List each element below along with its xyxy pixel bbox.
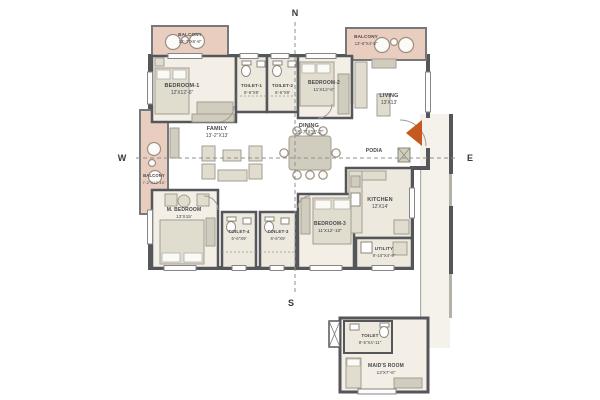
window <box>168 54 202 59</box>
cistern <box>227 217 236 221</box>
pillow <box>184 253 202 262</box>
label-utility: UTILITY <box>375 246 393 251</box>
pillow <box>173 70 186 79</box>
dims-family: 13'-2"X13' <box>206 133 229 139</box>
cistern <box>273 61 282 65</box>
wc-icon <box>242 66 251 77</box>
armchair-icon <box>249 164 262 179</box>
corridor-wall <box>449 206 453 274</box>
window <box>358 389 396 394</box>
window <box>372 266 394 271</box>
cistern <box>242 61 251 65</box>
label-bedroom2: BEDROOM-2 <box>308 80 340 86</box>
balcony-chair <box>399 38 414 53</box>
dims-living: 13'X13' <box>381 100 397 106</box>
basin-icon <box>350 324 359 330</box>
window <box>148 210 153 244</box>
round-table-icon <box>178 195 190 207</box>
table-icon <box>223 150 241 161</box>
window <box>310 266 342 271</box>
wc-icon <box>380 327 389 338</box>
dining-chair <box>293 171 301 179</box>
corridor-edge <box>420 168 421 318</box>
dining-chair <box>280 149 288 157</box>
pillow <box>162 253 180 262</box>
basin-icon <box>281 218 289 224</box>
label-family: FAMILY <box>207 126 228 132</box>
compass-south: S <box>288 298 294 308</box>
dims-toilet5: 8'-5"X4'-11" <box>359 340 382 345</box>
corridor-floor <box>420 114 450 348</box>
console-icon <box>372 59 396 68</box>
armchair-icon <box>165 194 177 206</box>
sink-icon <box>351 193 360 206</box>
basin-icon <box>243 218 251 224</box>
armchair-icon <box>197 194 209 206</box>
floor-plan: N S W E BALCONY 12'-7"X6'-8" BEDROOM-1 1… <box>0 0 600 400</box>
window <box>270 266 284 271</box>
dims-balcony3: 7'-2"X12'-10" <box>142 180 166 185</box>
compass-north: N <box>292 8 299 18</box>
label-balcony3: BALCONY <box>143 173 165 178</box>
label-toilet5: TOILET <box>361 333 378 338</box>
dims-bedroom1: 12'X12'-6" <box>171 90 194 96</box>
label-bedroom3: BEDROOM-3 <box>314 221 346 227</box>
wardrobe-icon <box>394 378 422 388</box>
media-unit-icon <box>192 114 234 122</box>
dining-chair <box>332 149 340 157</box>
cistern <box>265 217 274 221</box>
pillow <box>334 200 350 209</box>
balcony-chair <box>148 143 161 156</box>
corridor <box>420 114 453 348</box>
side-table-icon <box>155 58 164 66</box>
pillow <box>317 64 330 73</box>
label-dining: DINING <box>299 123 319 129</box>
dims-toilet4: 6'-6"X9' <box>232 236 247 241</box>
label-maidsroom: MAID'S ROOM <box>368 363 404 369</box>
dims-bedroom2: 11'X12'-6" <box>313 87 335 93</box>
dims-balcony2: 13'-6"X4'-8" <box>355 41 378 46</box>
window <box>148 72 153 104</box>
label-kitchen: KITCHEN <box>367 197 393 203</box>
dims-balcony1: 12'-7"X6'-8" <box>179 39 202 44</box>
corridor-railing <box>449 274 452 318</box>
corridor-railing <box>449 174 452 206</box>
label-living: LIVING <box>379 93 398 99</box>
label-podia: PODIA <box>366 148 383 154</box>
balcony-table <box>391 39 398 46</box>
hob-icon <box>351 176 360 187</box>
cabinet-icon <box>170 128 179 158</box>
dims-mbedroom: 13'X15' <box>176 214 192 220</box>
corridor-wall <box>449 114 453 174</box>
dims-toilet2: 6'-6"X9' <box>275 90 290 95</box>
sofa-icon <box>355 62 367 108</box>
dims-toilet1: 6'-6"X9' <box>244 90 259 95</box>
tub-icon <box>361 242 372 253</box>
dining-chair <box>306 171 314 179</box>
window <box>232 266 246 271</box>
label-balcony1: BALCONY <box>178 32 202 37</box>
window <box>426 72 431 112</box>
pillow <box>302 64 315 73</box>
dims-maidsroom: 13'X7'-6" <box>376 370 395 376</box>
dresser-icon <box>206 218 215 246</box>
armchair-icon <box>202 146 215 161</box>
label-toilet3: TOILET-3 <box>267 229 289 234</box>
sofa-icon <box>218 170 247 181</box>
dining-chair <box>319 171 327 179</box>
pillow <box>315 200 331 209</box>
armchair-icon <box>202 164 215 179</box>
pillow <box>347 359 360 366</box>
dims-dining: 18'-7"X15'-2" <box>295 130 324 136</box>
window <box>410 188 415 218</box>
compass-east: E <box>467 153 473 163</box>
window <box>164 266 196 271</box>
dims-toilet3: 6'-6"X9' <box>271 236 286 241</box>
compass-west: W <box>118 153 127 163</box>
label-balcony2: BALCONY <box>354 34 378 39</box>
dims-bedroom3: 11'X12'-10" <box>318 228 342 234</box>
armchair-icon <box>249 146 262 161</box>
label-mbedroom: M. BEDROOM <box>167 207 202 213</box>
window <box>271 54 289 59</box>
label-toilet1: TOILET-1 <box>241 83 263 88</box>
label-toilet2: TOILET-2 <box>272 83 294 88</box>
window <box>240 54 258 59</box>
wardrobe-icon <box>301 198 310 234</box>
basin-icon <box>257 61 265 67</box>
label-bedroom1: BEDROOM-1 <box>165 83 200 89</box>
wc-icon <box>273 66 282 77</box>
window <box>306 54 336 59</box>
dims-utility: 9'-10"X4'-9" <box>373 253 396 258</box>
fridge-icon <box>394 220 409 234</box>
label-toilet4: TOILET-4 <box>228 229 250 234</box>
pillow <box>157 70 170 79</box>
dims-kitchen: 12'X14' <box>372 204 388 210</box>
kitchen-counter-icon <box>362 171 386 180</box>
balcony-table <box>149 160 156 167</box>
